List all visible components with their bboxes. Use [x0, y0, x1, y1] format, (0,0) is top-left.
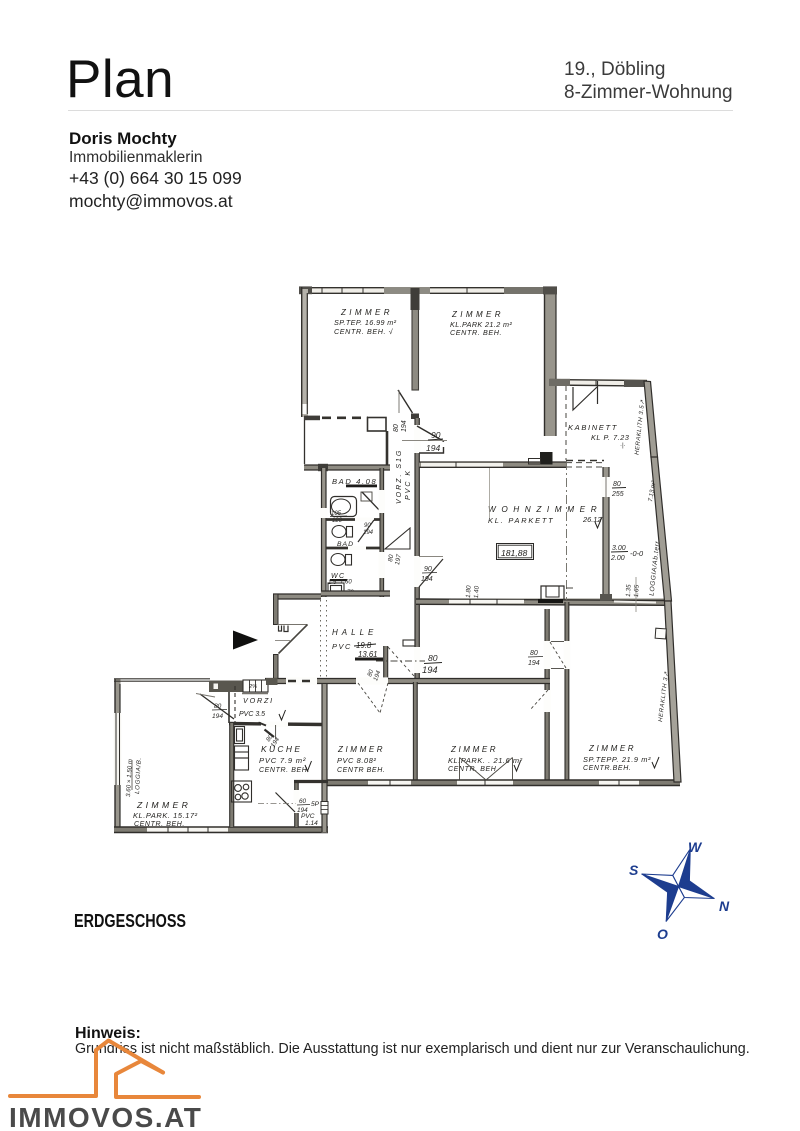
svg-text:N: N	[719, 898, 730, 914]
svg-text:ZIMMER: ZIMMER	[337, 745, 385, 754]
svg-text:KL.PARK. 15.17²: KL.PARK. 15.17²	[133, 811, 198, 820]
svg-text:KL. PARKETT: KL. PARKETT	[488, 516, 554, 525]
svg-text:HERAKLITH 3.5↗: HERAKLITH 3.5↗	[635, 399, 647, 456]
svg-text:60: 60	[299, 798, 307, 805]
svg-text:O: O	[657, 926, 668, 942]
svg-text:PVC: PVC	[332, 642, 352, 651]
svg-text:PVC 3.5: PVC 3.5	[239, 711, 265, 718]
svg-text:ZIMMER: ZIMMER	[340, 308, 393, 317]
svg-text:CENTR. BEH.: CENTR. BEH.	[134, 821, 185, 828]
svg-text:KÜCHE: KÜCHE	[261, 744, 302, 754]
svg-text:PVC K: PVC K	[405, 469, 412, 500]
svg-text:1.80: 1.80	[465, 585, 473, 598]
svg-text:LOGGIA/Ab.terr: LOGGIA/Ab.terr	[649, 540, 662, 596]
svg-text:194: 194	[212, 713, 223, 720]
svg-text:80: 80	[530, 650, 538, 657]
svg-text:194: 194	[363, 530, 374, 536]
svg-text:CENTR BEH.: CENTR BEH.	[337, 767, 385, 774]
svg-text:CENTR. BEH. √: CENTR. BEH. √	[334, 327, 393, 336]
svg-text:ZIMMER: ZIMMER	[450, 745, 498, 754]
svg-text:3.00: 3.00	[612, 545, 626, 552]
svg-text:ZIMMER: ZIMMER	[451, 310, 504, 319]
svg-text:LOGGIA/B.: LOGGIA/B.	[134, 757, 143, 794]
svg-text:1.40: 1.40	[473, 585, 481, 598]
svg-text:1.14: 1.14	[305, 820, 318, 827]
svg-text:CENTR. BEH.: CENTR. BEH.	[450, 328, 502, 337]
svg-text:194: 194	[421, 576, 433, 583]
svg-text:80: 80	[613, 481, 621, 488]
svg-text:KABINETT: KABINETT	[568, 423, 618, 432]
svg-text:CENTR.BEH.: CENTR.BEH.	[583, 765, 631, 772]
svg-text:26.12: 26.12	[582, 515, 602, 524]
svg-text:ZIMMER: ZIMMER	[136, 800, 191, 810]
svg-text:197: 197	[394, 553, 403, 565]
svg-text:80: 80	[428, 653, 438, 663]
svg-text:SP.TEPP. 21.9 m²: SP.TEPP. 21.9 m²	[583, 755, 651, 764]
svg-text:KL P. 7.23: KL P. 7.23	[591, 433, 630, 442]
svg-text:90: 90	[424, 566, 432, 573]
svg-text:90: 90	[431, 430, 441, 440]
svg-text:CENTR. BEH.: CENTR. BEH.	[259, 767, 310, 774]
svg-text:2%: 2%	[248, 684, 257, 690]
svg-text:194: 194	[422, 664, 438, 675]
svg-text:HERAKLITH 3↗: HERAKLITH 3↗	[658, 671, 670, 723]
svg-text:VORZI: VORZI	[243, 696, 274, 705]
svg-text:W: W	[688, 839, 703, 855]
svg-text:1.65: 1.65	[633, 584, 641, 597]
svg-text:HALLE: HALLE	[332, 628, 377, 637]
svg-text:194: 194	[401, 420, 408, 432]
svg-text:194: 194	[426, 443, 440, 453]
svg-text:PVC 7.9 m²: PVC 7.9 m²	[259, 756, 306, 765]
svg-text:·|·: ·|·	[620, 443, 626, 449]
svg-text:80: 80	[393, 424, 400, 432]
svg-text:1.35: 1.35	[625, 584, 633, 597]
svg-text:-0-0: -0-0	[630, 549, 644, 558]
svg-text:194: 194	[528, 660, 540, 667]
svg-text:3.60 × 1.50 m: 3.60 × 1.50 m	[125, 759, 134, 797]
svg-text:255: 255	[611, 491, 624, 498]
svg-text:ZIMMER: ZIMMER	[588, 744, 636, 753]
svg-text:5P: 5P	[311, 801, 320, 808]
svg-text:PVC 8.08²: PVC 8.08²	[337, 756, 377, 765]
svg-text:PVC: PVC	[301, 813, 315, 820]
svg-text:90: 90	[364, 523, 371, 529]
svg-text:181,88: 181,88	[501, 548, 528, 558]
svg-text:WOHNZIMMER: WOHNZIMMER	[488, 505, 602, 514]
svg-text:2.00: 2.00	[610, 555, 625, 562]
svg-text:SP.TEP. 16.99 m²: SP.TEP. 16.99 m²	[334, 318, 397, 327]
svg-text:80: 80	[214, 703, 222, 710]
svg-text:VORZ. S1G: VORZ. S1G	[396, 449, 403, 504]
svg-text:S: S	[629, 862, 639, 878]
